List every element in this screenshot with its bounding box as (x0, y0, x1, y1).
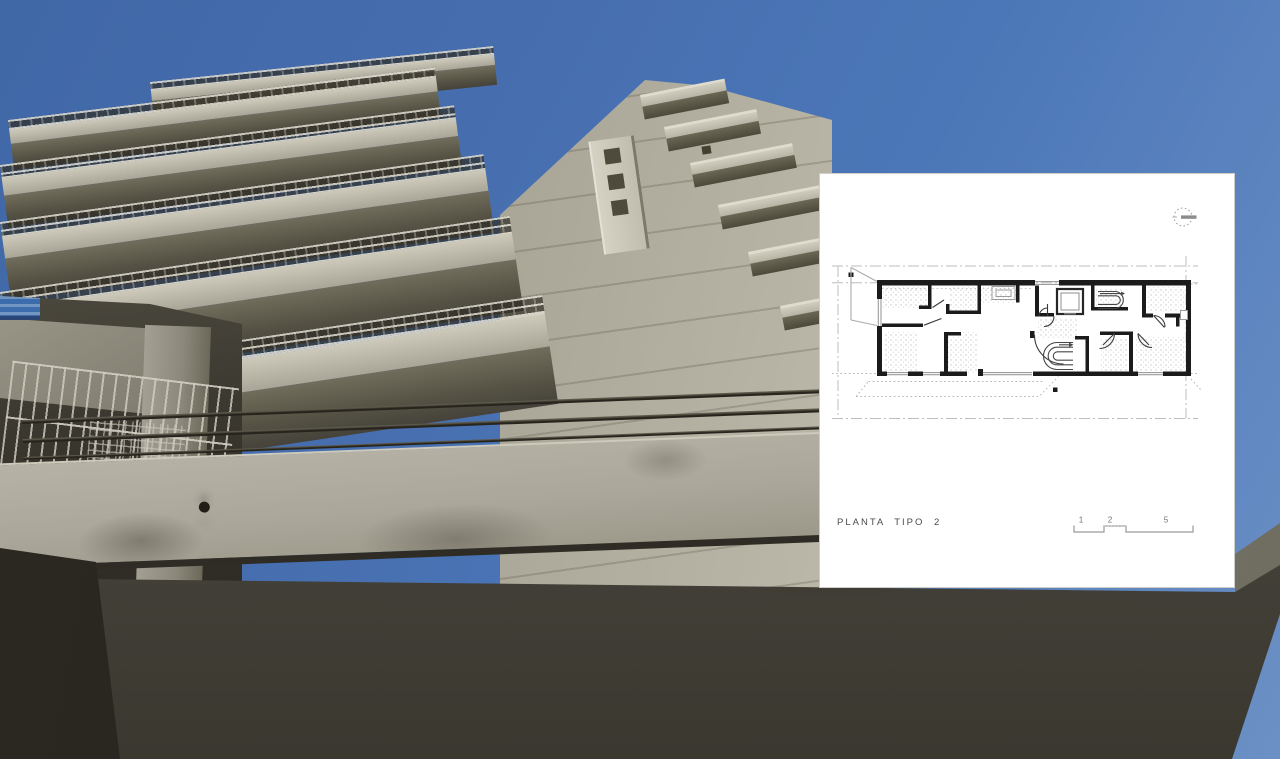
facade-vent (701, 145, 711, 154)
scale-label: 2 (1108, 516, 1113, 525)
plan-title: PLANTA TIPO 2 (837, 517, 941, 528)
drain-hole (199, 501, 210, 512)
scale-label: 1 (1079, 516, 1084, 525)
architecture-page: 1 2 5 PLANTA TIPO 2 (0, 0, 1280, 759)
north-indicator-icon (1173, 208, 1197, 226)
scale-bar: 1 2 5 (1074, 516, 1193, 533)
floorplan-panel: 1 2 5 PLANTA TIPO 2 (819, 173, 1235, 588)
scale-label: 5 (1164, 516, 1169, 525)
